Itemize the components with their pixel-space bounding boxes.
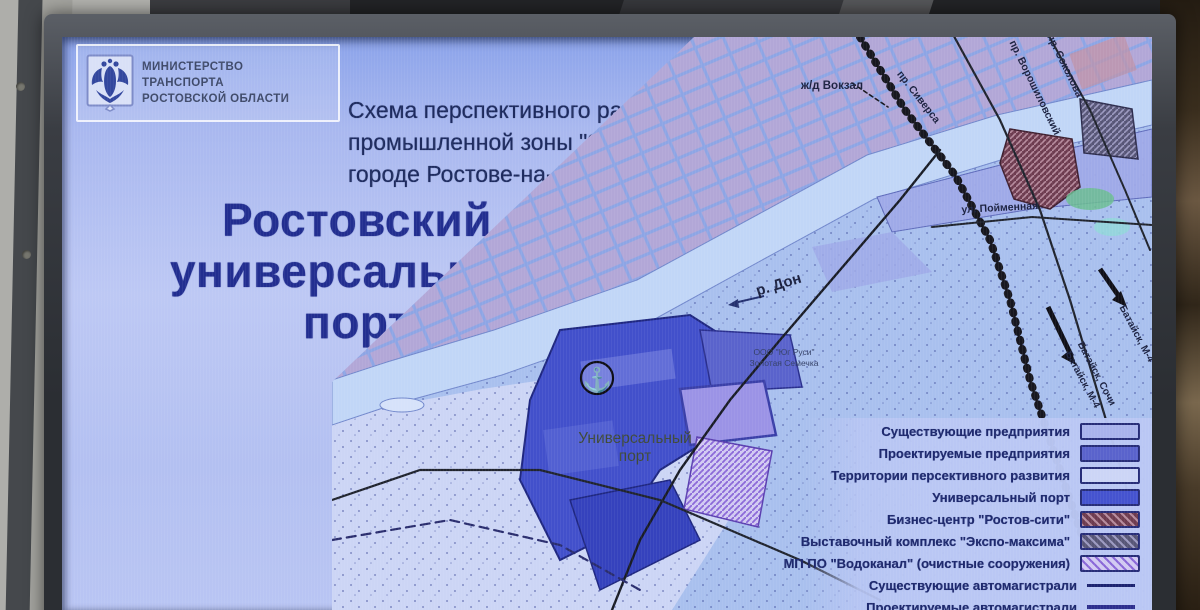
legend-item: Существующие предприятия bbox=[784, 423, 1140, 439]
legend-item: Выставочный комплекс "Экспо-максима" bbox=[784, 533, 1140, 549]
port-terminal bbox=[543, 420, 619, 475]
legend-item: МП ПО "Водоканал" (очистные сооружения) bbox=[784, 555, 1140, 571]
label-company: Золотая Семечка bbox=[750, 358, 819, 368]
legend-line-sample bbox=[1087, 605, 1135, 609]
legend-item: Универсальный порт bbox=[784, 489, 1140, 505]
screw bbox=[16, 82, 25, 91]
legend-swatch bbox=[1080, 423, 1140, 440]
screen: МИНИСТЕРСТВО ТРАНСПОРТА РОСТОВСКОЙ ОБЛАС… bbox=[62, 37, 1152, 610]
legend: Существующие предприятияПроектируемые пр… bbox=[784, 423, 1140, 610]
zone-projected-enterprises-light bbox=[680, 381, 776, 445]
legend-swatch bbox=[1080, 555, 1140, 572]
ministry-name: МИНИСТЕРСТВО ТРАНСПОРТА РОСТОВСКОЙ ОБЛАС… bbox=[142, 59, 289, 107]
screw bbox=[22, 250, 31, 259]
legend-item: Территории персективного развития bbox=[784, 467, 1140, 483]
coat-of-arms bbox=[86, 54, 134, 112]
legend-label: Существующие автомагистрали bbox=[869, 578, 1077, 593]
legend-line-sample bbox=[1087, 584, 1135, 587]
monitor-bezel: МИНИСТЕРСТВО ТРАНСПОРТА РОСТОВСКОЙ ОБЛАС… bbox=[44, 14, 1176, 610]
anchor-icon: ⚓ bbox=[581, 362, 613, 394]
legend-item: Существующие автомагистрали bbox=[784, 577, 1140, 593]
legend-item: Проектируемые автомагистрали bbox=[784, 599, 1140, 610]
ministry-logo-box: МИНИСТЕРСТВО ТРАНСПОРТА РОСТОВСКОЙ ОБЛАС… bbox=[76, 44, 340, 122]
ministry-line: РОСТОВСКОЙ ОБЛАСТИ bbox=[142, 91, 289, 107]
legend-label: Бизнес-центр "Ростов-сити" bbox=[887, 512, 1070, 527]
ministry-line: ТРАНСПОРТА bbox=[142, 75, 289, 91]
legend-label: Территории персективного развития bbox=[831, 468, 1070, 483]
river-island bbox=[380, 398, 424, 412]
svg-text:⚓: ⚓ bbox=[582, 366, 612, 394]
photo-of-monitor: МИНИСТЕРСТВО ТРАНСПОРТА РОСТОВСКОЙ ОБЛАС… bbox=[0, 0, 1200, 610]
legend-label: Универсальный порт bbox=[932, 490, 1070, 505]
legend-swatch bbox=[1080, 511, 1140, 528]
legend-label: Выставочный комплекс "Экспо-максима" bbox=[801, 534, 1070, 549]
label-company: ООО "Юг Руси" bbox=[753, 347, 814, 357]
legend-swatch bbox=[1080, 445, 1140, 462]
legend-label: Существующие предприятия bbox=[881, 424, 1070, 439]
legend-label: Проектируемые предприятия bbox=[879, 446, 1070, 461]
park-area bbox=[1066, 188, 1114, 210]
legend-item: Проектируемые предприятия bbox=[784, 445, 1140, 461]
legend-swatch bbox=[1080, 533, 1140, 550]
legend-label: МП ПО "Водоканал" (очистные сооружения) bbox=[784, 556, 1070, 571]
legend-swatch bbox=[1080, 489, 1140, 506]
label-universal-port: Универсальный bbox=[578, 430, 692, 447]
legend-swatch bbox=[1080, 467, 1140, 484]
label-rail-station: ж/д Вокзал bbox=[800, 80, 863, 92]
ministry-line: МИНИСТЕРСТВО bbox=[142, 59, 289, 75]
legend-item: Бизнес-центр "Ростов-сити" bbox=[784, 511, 1140, 527]
legend-label: Проектируемые автомагистрали bbox=[866, 600, 1077, 610]
label-universal-port: порт bbox=[619, 448, 651, 465]
